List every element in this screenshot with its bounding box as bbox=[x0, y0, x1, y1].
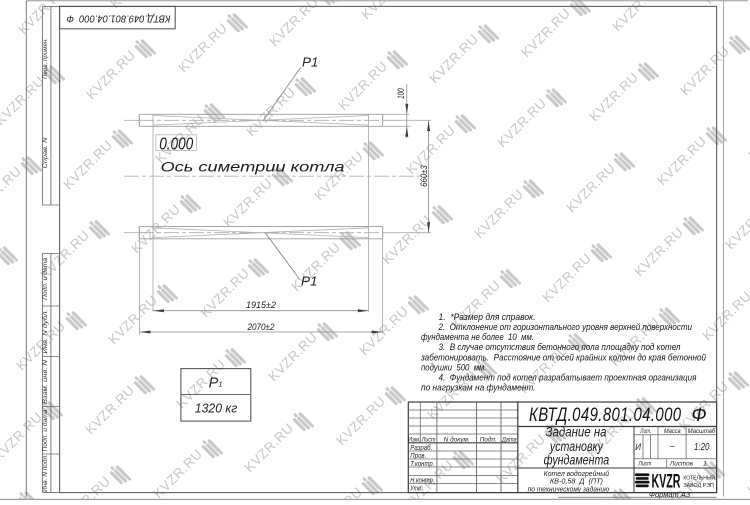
svg-text:Инв. N дубл.: Инв. N дубл. bbox=[41, 309, 49, 353]
svg-text:И: И bbox=[635, 442, 641, 452]
svg-text:1915±2: 1915±2 bbox=[246, 300, 277, 311]
svg-text:Лист: Лист bbox=[421, 436, 436, 443]
svg-text:100: 100 bbox=[396, 88, 406, 99]
svg-text:0.000: 0.000 bbox=[159, 134, 193, 154]
svg-text:1:20: 1:20 bbox=[694, 441, 710, 453]
svg-text:Лит.: Лит. bbox=[640, 428, 652, 435]
svg-text:1: 1 bbox=[218, 380, 222, 389]
svg-text:Подп.: Подп. bbox=[480, 435, 497, 443]
svg-text:Дата: Дата bbox=[501, 436, 517, 443]
svg-text:1: 1 bbox=[703, 461, 707, 468]
svg-text:660±3: 660±3 bbox=[419, 165, 429, 187]
svg-text:Изм.: Изм. bbox=[408, 436, 421, 443]
svg-text:ЗАВОД РЭП: ЗАВОД РЭП bbox=[683, 483, 714, 489]
svg-text:Лист: Лист bbox=[638, 461, 652, 468]
svg-text:–: – bbox=[669, 441, 676, 451]
svg-text:Масса: Масса bbox=[664, 428, 681, 435]
svg-text:Р1: Р1 bbox=[301, 274, 318, 289]
svg-text:Подп. и дата: Подп. и дата bbox=[41, 258, 49, 300]
svg-text:по техническому заданию: по техническому заданию bbox=[528, 484, 610, 493]
svg-text:Формат А3: Формат А3 bbox=[649, 490, 691, 499]
svg-text:Р1: Р1 bbox=[302, 55, 319, 70]
svg-text:КОТЕЛЬНЫЙ: КОТЕЛЬНЫЙ bbox=[683, 473, 715, 481]
svg-text:Ось симетрии котла: Ось симетрии котла bbox=[161, 159, 345, 175]
svg-text:Листов: Листов bbox=[669, 461, 693, 468]
svg-text:Ф: Ф bbox=[692, 405, 707, 426]
svg-text:Справ. N: Справ. N bbox=[42, 137, 49, 168]
svg-text:Р: Р bbox=[209, 375, 219, 391]
svg-text:N докум.: N докум. bbox=[444, 435, 470, 443]
svg-text:фундамента: фундамента bbox=[544, 453, 610, 468]
svg-text:Перв. примен.: Перв. примен. bbox=[42, 38, 49, 79]
svg-text:Пров.: Пров. bbox=[410, 453, 426, 460]
svg-text:Разраб.: Разраб. bbox=[410, 444, 432, 452]
svg-text:Задание на: Задание на bbox=[546, 424, 607, 439]
svg-text:Утв.: Утв. bbox=[410, 486, 423, 493]
svg-text:Н.контр.: Н.контр. bbox=[410, 477, 434, 484]
svg-text:КВТД.049.801.04.000 Ф: КВТД.049.801.04.000 Ф bbox=[66, 12, 170, 23]
svg-text:2070±2: 2070±2 bbox=[247, 322, 275, 333]
svg-text:Масштаб: Масштаб bbox=[688, 428, 716, 435]
svg-text:Взам. инв. N: Взам. инв. N bbox=[42, 360, 49, 404]
svg-text:Подп. и дата: Подп. и дата bbox=[41, 409, 49, 451]
svg-text:КВТД.049.801.04.000: КВТД.049.801.04.000 bbox=[529, 405, 682, 426]
svg-text:1320 кг: 1320 кг bbox=[195, 400, 238, 415]
svg-text:по нагрузкам на фундамент.: по нагрузкам на фундамент. bbox=[421, 383, 536, 394]
svg-text:Инв. N подл.: Инв. N подл. bbox=[41, 454, 49, 492]
svg-text:Т.контр.: Т.контр. bbox=[410, 461, 434, 468]
